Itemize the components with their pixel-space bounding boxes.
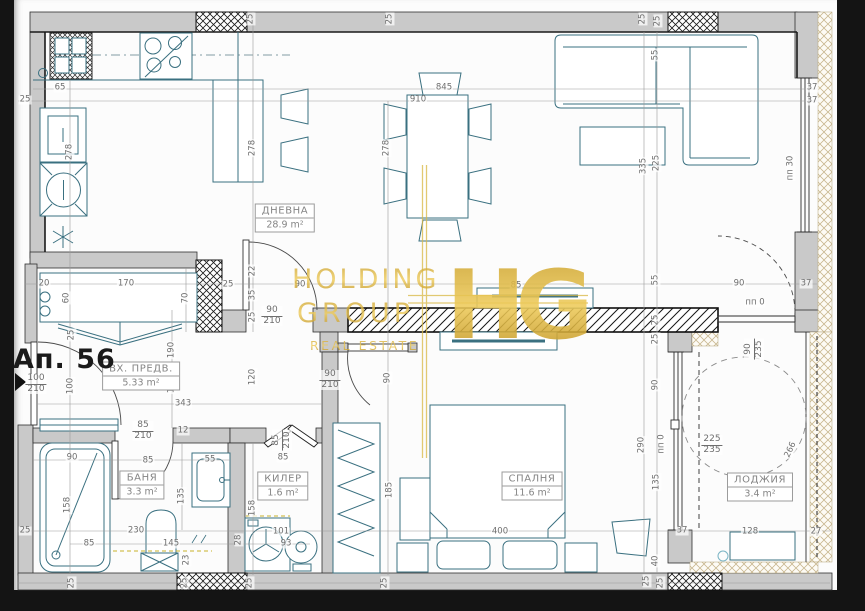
room-name: КИЛЕР: [258, 473, 307, 487]
door-size-marker: 90210: [261, 306, 282, 326]
door-width: 90: [261, 306, 282, 317]
room-label: ДНЕВНА28.9 m²: [255, 204, 315, 233]
door-height: 210: [261, 317, 282, 327]
door-height: 235: [755, 338, 765, 359]
door-size-marker: 85210: [132, 421, 153, 441]
room-name: БАНЯ: [120, 472, 163, 486]
door-height: 210: [319, 381, 340, 391]
room-name: ДНЕВНА: [256, 205, 314, 219]
room-area: 28.9 m²: [256, 219, 314, 232]
door-height: 210: [132, 432, 153, 442]
door-size-marker: 90210: [319, 370, 340, 390]
room-area: 5.33 m²: [103, 377, 179, 390]
apartment-number: Ап. 56: [13, 344, 116, 375]
floor-plan-canvas: 252525256584591037372527827827833522555п…: [0, 0, 865, 611]
door-width: 85: [272, 429, 283, 450]
door-width: 90: [319, 370, 340, 381]
door-width: 100: [25, 374, 46, 385]
door-size-marker: 85210: [272, 429, 292, 450]
room-name: ЛОДЖИЯ: [728, 474, 792, 488]
door-height: 210: [283, 429, 293, 450]
room-labels-layer: ДНЕВНА28.9 m²ВХ. ПРЕДВ.5.33 m²БАНЯ3.3 m²…: [0, 0, 865, 611]
door-width: 225: [701, 435, 722, 446]
room-name: СПАЛНЯ: [503, 473, 562, 487]
room-label: ЛОДЖИЯ3.4 m²: [727, 473, 793, 502]
room-label: СПАЛНЯ11.6 m²: [502, 472, 563, 501]
room-area: 3.3 m²: [120, 486, 163, 499]
room-area: 1.6 m²: [258, 487, 307, 500]
room-label: КИЛЕР1.6 m²: [257, 472, 308, 501]
room-label: БАНЯ3.3 m²: [119, 471, 164, 500]
room-area: 3.4 m²: [728, 488, 792, 501]
door-width: 90: [744, 338, 755, 359]
door-size-marker: 90235: [744, 338, 764, 359]
door-height: 235: [701, 446, 722, 456]
door-size-marker: 100210: [25, 374, 46, 394]
door-height: 210: [25, 385, 46, 395]
door-width: 85: [132, 421, 153, 432]
door-size-marker: 225235: [701, 435, 722, 455]
room-area: 11.6 m²: [503, 487, 562, 500]
